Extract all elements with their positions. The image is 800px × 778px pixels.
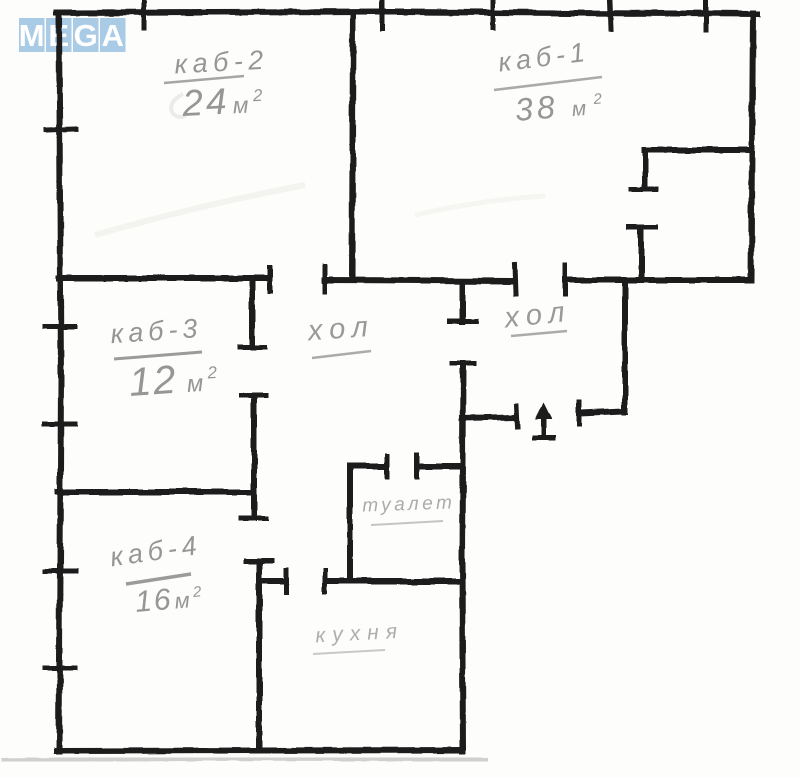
svg-text:кухня: кухня bbox=[315, 620, 405, 648]
svg-text:туалет: туалет bbox=[362, 492, 456, 516]
svg-text:хол: хол bbox=[305, 311, 376, 348]
svg-text:G: G bbox=[74, 18, 98, 53]
svg-text:A: A bbox=[102, 18, 124, 53]
svg-text:M: M bbox=[19, 18, 45, 53]
svg-text:каб-3: каб-3 bbox=[109, 313, 203, 349]
svg-text:каб-2: каб-2 bbox=[174, 45, 270, 80]
